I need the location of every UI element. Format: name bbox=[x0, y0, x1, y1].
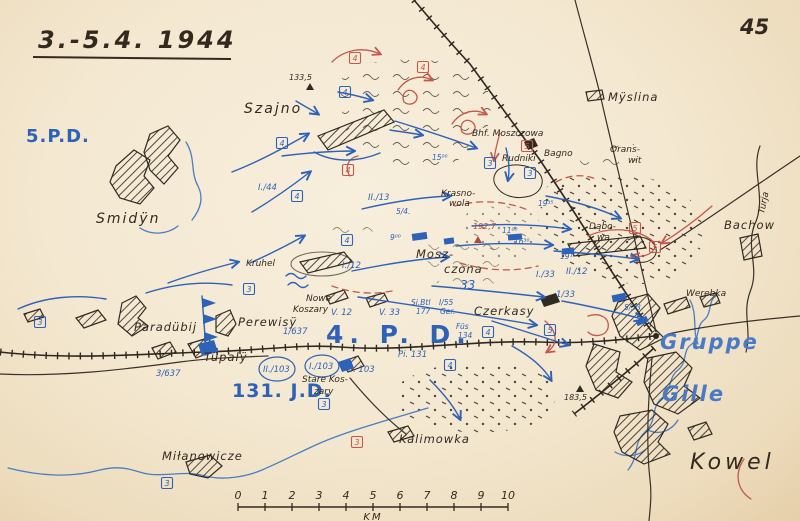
map-label: II./12 bbox=[566, 267, 587, 277]
map-label: 1/33 bbox=[556, 290, 575, 300]
map-label: Bagno bbox=[544, 149, 573, 159]
map-label: I./44 bbox=[258, 183, 277, 193]
map-label: Kowel bbox=[690, 450, 775, 475]
map-label: Gruppe bbox=[660, 330, 759, 354]
map-label: Kalimowka bbox=[399, 432, 470, 446]
map-label: II./13 bbox=[368, 193, 389, 203]
map-label: Ger. bbox=[440, 307, 455, 316]
map-label: Werebka bbox=[686, 289, 726, 299]
unit-box-blue-3: 3 bbox=[162, 478, 173, 489]
map-scan: 5.P.D.4. P. D.131. J.D.GruppeGilleSzajno… bbox=[0, 0, 800, 521]
front-line-pennants bbox=[198, 296, 218, 356]
map-label: II. 103 bbox=[348, 365, 375, 375]
title-block: 3.-5.4. 1944 45 bbox=[33, 15, 769, 59]
scale-number: 8 bbox=[451, 489, 458, 502]
map-label: I/55 bbox=[439, 298, 454, 307]
unit-box-blue-3: 3 bbox=[244, 284, 255, 295]
map-label: V. 12 bbox=[331, 308, 352, 318]
svg-text:4: 4 bbox=[420, 63, 425, 72]
map-label: wola bbox=[449, 199, 470, 209]
unit-box-blue-4: 4 bbox=[483, 327, 494, 338]
title-underline bbox=[33, 57, 231, 59]
svg-text:5: 5 bbox=[632, 224, 637, 233]
map-label: 9⁰⁰ bbox=[390, 233, 401, 242]
map-label: Gille bbox=[662, 382, 725, 406]
scale-number: 4 bbox=[343, 489, 350, 502]
map-label: 5.P.D. bbox=[26, 126, 90, 147]
map-label: wa bbox=[597, 233, 610, 243]
svg-text:5: 5 bbox=[652, 243, 657, 252]
map-label: 4. P. D. bbox=[326, 320, 472, 349]
map-label: czona bbox=[444, 262, 483, 276]
scale-number: 7 bbox=[424, 489, 431, 502]
map-label: Tüpalÿ bbox=[204, 350, 248, 364]
map-label: Nowe bbox=[306, 294, 332, 304]
map-label: Bachow bbox=[724, 218, 775, 232]
map-label: 5/33 bbox=[624, 303, 641, 312]
map-label: 19¹⁵ bbox=[560, 252, 576, 261]
svg-text:4: 4 bbox=[345, 166, 350, 175]
scale-number: 3 bbox=[316, 489, 323, 502]
svg-text:3: 3 bbox=[37, 318, 42, 327]
map-label: Miłanowicze bbox=[162, 449, 243, 463]
svg-text:4: 4 bbox=[344, 236, 349, 245]
svg-text:3: 3 bbox=[354, 438, 359, 447]
map-label: I./12 bbox=[342, 261, 361, 271]
unit-box-red-4: 4 bbox=[343, 165, 354, 176]
map-label: 15⁰⁰ bbox=[432, 153, 448, 162]
unit-box-red-3: 3 bbox=[352, 437, 363, 448]
map-label: Orans- bbox=[610, 145, 640, 155]
map-label: Kruhel bbox=[246, 259, 276, 269]
svg-text:4: 4 bbox=[447, 361, 452, 370]
map-label: 5/4. bbox=[396, 207, 410, 216]
unit-box-red-4: 4 bbox=[350, 53, 361, 64]
map-label: 1/637 bbox=[283, 327, 308, 337]
map-label: II./103 bbox=[263, 365, 290, 375]
map-label: Szajno bbox=[244, 101, 302, 117]
svg-text:4: 4 bbox=[485, 328, 490, 337]
svg-text:5: 5 bbox=[547, 326, 552, 335]
map-label: 11⁰⁰ bbox=[502, 226, 518, 235]
svg-text:4: 4 bbox=[279, 139, 284, 148]
scale-number: 1 bbox=[262, 489, 269, 502]
map-label: 16³⁰ bbox=[514, 237, 530, 246]
svg-text:4: 4 bbox=[352, 54, 357, 63]
map-label: Füs bbox=[456, 322, 469, 331]
map-label: 134 bbox=[458, 331, 473, 340]
map-label: Koszary bbox=[293, 305, 329, 315]
scale-bar: 012345678910KM bbox=[235, 489, 516, 521]
scale-number: 9 bbox=[478, 489, 485, 502]
map-label: I./103 bbox=[309, 362, 333, 372]
svg-text:3: 3 bbox=[527, 169, 532, 178]
map-label: Bhf. Moszczowa bbox=[472, 129, 543, 139]
unit-box-blue-4: 4 bbox=[292, 191, 303, 202]
scale-number: 5 bbox=[370, 489, 377, 502]
situation-map: 5.P.D.4. P. D.131. J.D.GruppeGilleSzajno… bbox=[0, 0, 800, 521]
map-label: 183,5 bbox=[564, 393, 587, 402]
map-label: Mosz- bbox=[416, 247, 454, 261]
map-label: wit bbox=[628, 156, 642, 166]
scale-number: 2 bbox=[289, 489, 296, 502]
map-label: Krasno- bbox=[441, 189, 475, 199]
map-label: 192,7 bbox=[473, 222, 497, 231]
map-label: Czerkasy bbox=[474, 304, 534, 318]
map-label: 177 bbox=[416, 307, 431, 316]
map-label: Smidÿn bbox=[96, 211, 160, 227]
svg-text:3: 3 bbox=[321, 400, 326, 409]
map-label: 33 bbox=[460, 278, 475, 292]
map-label: V. 33 bbox=[379, 308, 400, 318]
scale-number: 0 bbox=[235, 489, 242, 502]
scale-number: 10 bbox=[501, 489, 515, 502]
map-title: 3.-5.4. 1944 bbox=[38, 26, 237, 54]
map-label: I./33 bbox=[536, 270, 555, 280]
map-label: Dąbo- bbox=[589, 222, 616, 232]
svg-text:3: 3 bbox=[246, 285, 251, 294]
map-label: Si.Btl bbox=[411, 298, 431, 307]
map-label: zary bbox=[313, 387, 334, 397]
map-label: 3/637 bbox=[156, 369, 181, 379]
map-label: Mÿslina bbox=[608, 90, 658, 104]
svg-text:3: 3 bbox=[164, 479, 169, 488]
map-label: Paradübij bbox=[134, 320, 197, 334]
scale-unit-label: KM bbox=[363, 512, 382, 521]
map-label: 133,5 bbox=[289, 73, 312, 82]
map-label: Rudniki bbox=[502, 154, 536, 164]
page-number: 45 bbox=[739, 15, 769, 39]
svg-text:4: 4 bbox=[342, 88, 347, 97]
map-label: Pi. 131 bbox=[398, 350, 427, 360]
map-label: 19³⁵ bbox=[538, 199, 554, 208]
svg-text:5: 5 bbox=[524, 142, 529, 151]
svg-text:4: 4 bbox=[294, 192, 299, 201]
map-label: Stare Kos- bbox=[302, 375, 348, 385]
scale-number: 6 bbox=[397, 489, 404, 502]
svg-text:3: 3 bbox=[487, 159, 492, 168]
